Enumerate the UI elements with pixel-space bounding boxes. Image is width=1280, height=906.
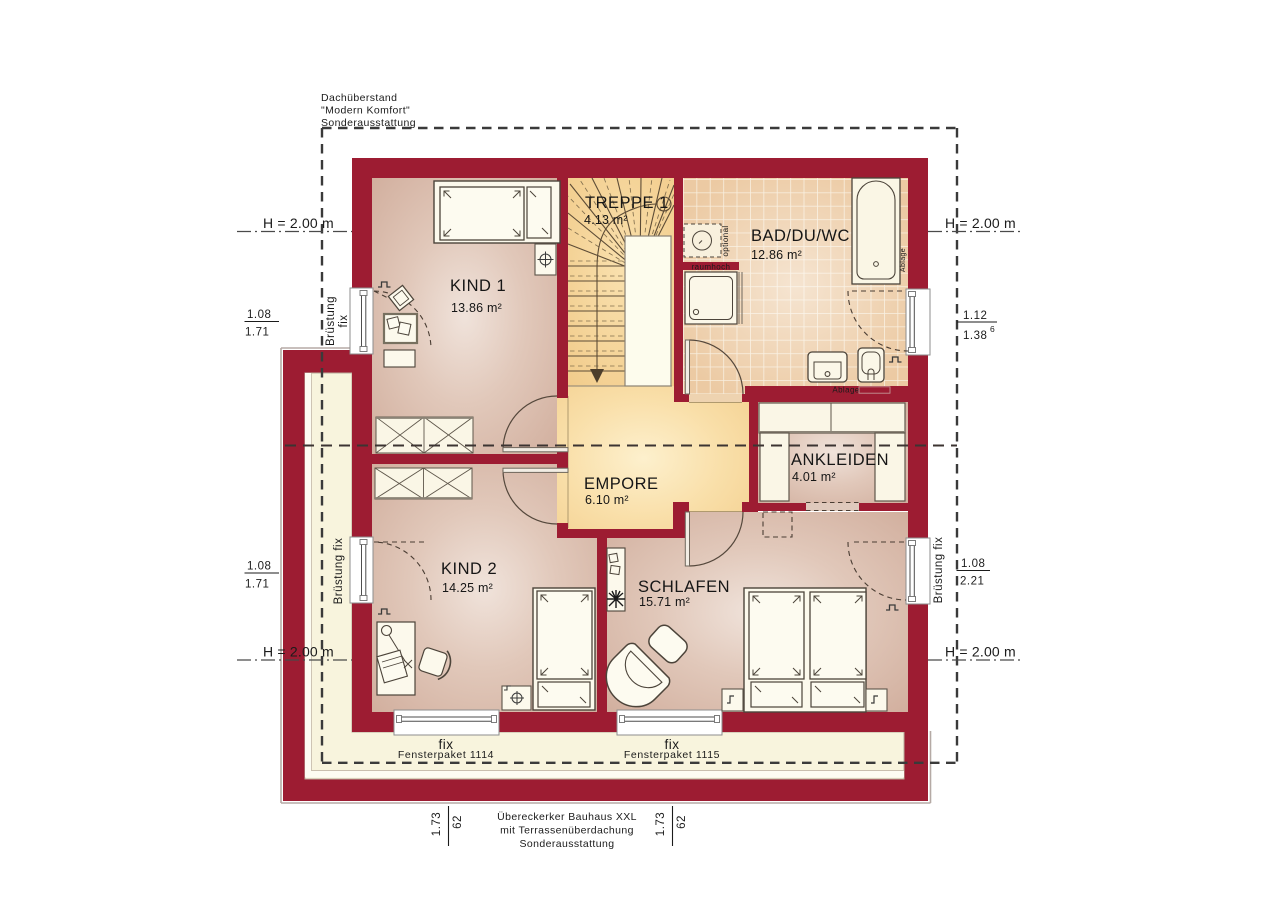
svg-text:H = 2.00 m: H = 2.00 m [263, 644, 334, 660]
svg-text:KIND 1: KIND 1 [450, 277, 506, 295]
svg-text:TREPPE 1: TREPPE 1 [585, 194, 669, 212]
svg-text:Ablage: Ablage [900, 248, 907, 272]
svg-text:KIND 2: KIND 2 [441, 560, 497, 578]
svg-text:1.71: 1.71 [245, 327, 269, 339]
svg-text:Brüstung fix: Brüstung fix [333, 538, 345, 605]
svg-text:raumhoch: raumhoch [692, 262, 731, 271]
svg-text:"Modern Komfort": "Modern Komfort" [321, 105, 410, 117]
svg-text:Dachüberstand: Dachüberstand [321, 92, 397, 104]
svg-text:H = 2.00 m: H = 2.00 m [945, 644, 1016, 660]
svg-text:Sonderausstattung: Sonderausstattung [321, 117, 416, 129]
svg-text:Fensterpaket 1115: Fensterpaket 1115 [624, 749, 720, 761]
svg-text:Brüstung: Brüstung [325, 296, 337, 346]
svg-text:1.73: 1.73 [655, 812, 667, 836]
svg-text:Fensterpaket 1114: Fensterpaket 1114 [398, 749, 494, 761]
svg-text:12.86 m²: 12.86 m² [751, 248, 802, 262]
svg-text:Brüstung fix: Brüstung fix [933, 537, 945, 604]
svg-text:ANKLEIDEN: ANKLEIDEN [791, 451, 889, 469]
svg-text:2.21: 2.21 [960, 576, 984, 588]
svg-text:15.71 m²: 15.71 m² [639, 595, 690, 609]
svg-text:14.25 m²: 14.25 m² [442, 581, 493, 595]
svg-text:EMPORE: EMPORE [584, 475, 659, 493]
svg-text:1.73: 1.73 [431, 812, 443, 836]
svg-text:6.10 m²: 6.10 m² [585, 493, 629, 507]
svg-text:fix: fix [338, 315, 350, 328]
svg-text:4.13 m²: 4.13 m² [584, 213, 628, 227]
svg-text:1.71: 1.71 [245, 579, 269, 591]
svg-text:H = 2.00 m: H = 2.00 m [945, 215, 1016, 231]
svg-text:Übereckerker Bauhaus XXL: Übereckerker Bauhaus XXL [497, 811, 637, 823]
svg-text:1.12: 1.12 [963, 310, 987, 322]
svg-text:mit Terrassenüberdachung: mit Terrassenüberdachung [500, 825, 634, 837]
svg-text:Ablage: Ablage [832, 386, 859, 395]
svg-text:62: 62 [452, 815, 464, 829]
svg-text:6: 6 [990, 324, 995, 334]
svg-text:1.08: 1.08 [247, 561, 271, 573]
svg-text:BAD/DU/WC: BAD/DU/WC [751, 227, 850, 245]
svg-text:4.01 m²: 4.01 m² [792, 470, 836, 484]
svg-text:13.86 m²: 13.86 m² [451, 301, 502, 315]
svg-text:1.08: 1.08 [247, 309, 271, 321]
svg-text:1.38: 1.38 [963, 330, 987, 342]
svg-text:62: 62 [676, 815, 688, 829]
svg-text:1.08: 1.08 [961, 558, 985, 570]
svg-text:H = 2.00 m: H = 2.00 m [263, 215, 334, 231]
svg-text:SCHLAFEN: SCHLAFEN [638, 578, 730, 596]
svg-text:optional: optional [721, 225, 730, 256]
svg-text:Sonderausstattung: Sonderausstattung [520, 838, 615, 850]
